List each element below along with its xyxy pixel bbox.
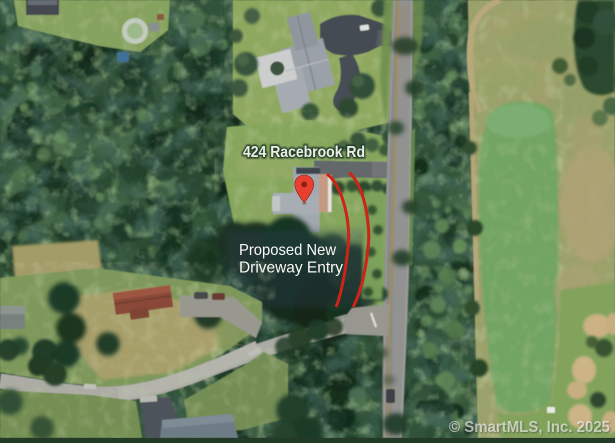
svg-text:424 Racebrook Rd: 424 Racebrook Rd [243, 144, 365, 161]
svg-text:© SmartMLS, Inc. 2025: © SmartMLS, Inc. 2025 [449, 419, 610, 436]
svg-text:Proposed New: Proposed New [239, 242, 336, 259]
svg-text:Driveway Entry: Driveway Entry [239, 260, 343, 277]
